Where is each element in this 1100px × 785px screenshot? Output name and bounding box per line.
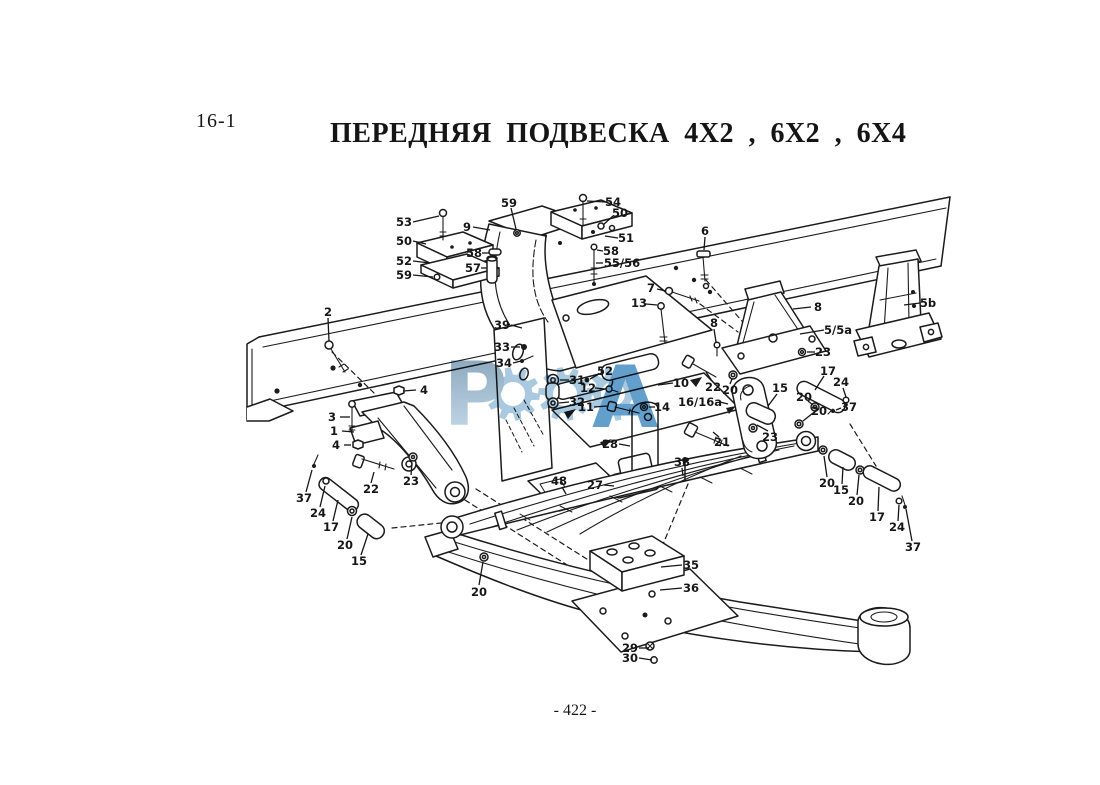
leader-line [857,475,859,495]
leader-line [403,390,416,391]
part-label: 50 [612,206,628,220]
leader-line [639,658,652,660]
part-label: 10 [673,376,689,390]
leader-line [768,394,777,406]
part-label: 37 [841,400,857,414]
leader-line [306,470,312,492]
part-label: 50 [396,234,412,248]
part-label: 48 [551,474,567,488]
part-label: 23 [403,474,419,488]
leader-line [605,236,618,238]
part-label: 27 [587,478,603,492]
part-label: 7 [647,281,655,295]
leader-line [843,388,846,397]
part-label: 8 [814,300,822,314]
part-label: 2 [324,305,332,319]
part-label: 4 [420,383,428,397]
leader-line [906,509,912,541]
part-label: 20 [337,538,353,552]
part-label: 24 [310,506,326,520]
part-label: 8 [710,316,718,330]
leader-line [793,307,811,309]
part-label: 39 [494,318,510,332]
part-label: 52 [396,254,412,268]
part-label: 20 [811,404,827,418]
watermark-letter-p: Р [443,343,508,446]
part-label: 35 [683,558,699,572]
leader-line [714,329,716,342]
part-label: 24 [833,375,849,389]
leader-line [413,216,439,222]
part-label: 58 [466,246,482,260]
part-label: 23 [762,430,778,444]
part-label: 5/5a [824,323,852,337]
part-label: 13 [631,296,647,310]
part-label: 51 [618,231,634,245]
exploded-view-diagram: 5350525995958575450515855/566713885/5a5b… [0,0,1100,785]
part-label: 57 [465,261,481,275]
part-label: 15 [833,483,849,497]
part-label: 15 [351,554,367,568]
part-label: 17 [869,510,885,524]
part-label: 36 [683,581,699,595]
part-label: 16/16a [678,395,722,409]
part-label: 59 [396,268,412,282]
part-label: 59 [501,196,517,210]
part-label: 15 [772,381,788,395]
part-label: 53 [396,215,412,229]
part-label: 23 [815,345,831,359]
part-label: 9 [463,220,471,234]
part-label: 4 [332,438,340,452]
part-label: 30 [622,651,638,665]
part-label: 3 [328,410,336,424]
catalog-page: 16-1 ПЕРЕДНЯЯ ПОДВЕСКА 4X2 , 6X2 , 6X4 [0,0,1100,785]
part-label: 20 [796,390,812,404]
part-label: 24 [889,520,905,534]
leader-line [347,517,352,539]
part-label: 37 [296,491,312,505]
part-label: 38 [674,455,690,469]
leader-line [824,456,827,477]
part-label: 5b [920,296,936,310]
part-label: 37 [905,540,921,554]
part-label: 1 [330,424,338,438]
part-label: 20 [848,494,864,508]
part-label: 17 [323,520,339,534]
part-label: 20 [722,383,738,397]
part-label: 55/56 [604,256,640,270]
part-label: 20 [471,585,487,599]
leader-line [842,467,843,484]
leader-line [898,505,899,521]
page-number: - 422 - [515,702,635,720]
leader-line [878,487,879,511]
part-label: 22 [363,482,379,496]
part-label: 6 [701,224,709,238]
leader-line [361,534,368,555]
part-label: 21 [714,435,730,449]
part-label: 22 [705,380,721,394]
watermark-letter-a: А [592,348,659,448]
leader-line [333,500,338,521]
leader-line [559,402,569,403]
